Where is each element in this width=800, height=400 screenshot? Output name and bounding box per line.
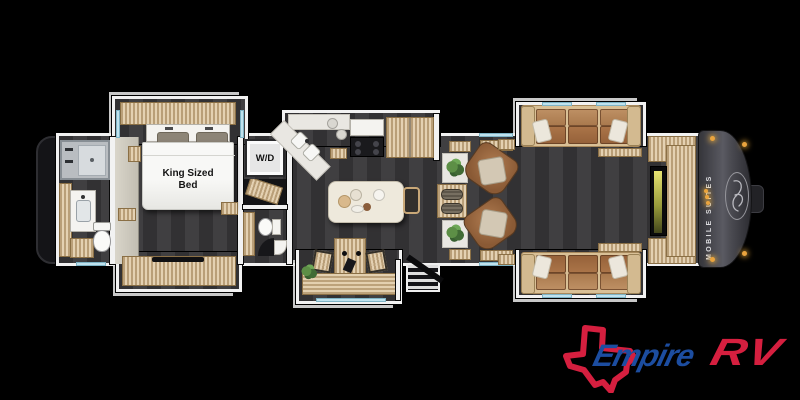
sofa-top-back-cushion: [568, 109, 598, 126]
toilet-icon: [93, 230, 111, 252]
bath-window: [76, 262, 106, 266]
bath-sink: [76, 200, 91, 222]
bed-fold-line: [143, 155, 235, 156]
half-bath-toilet-tank: [272, 219, 281, 235]
shower-faucet-icon: [65, 148, 73, 151]
angled-counter: [245, 179, 283, 205]
marker-light-icon: [710, 257, 715, 262]
sofa-bottom-window: [596, 294, 626, 298]
island-stool: [403, 187, 420, 214]
wall-half-bath-top: [243, 205, 287, 209]
microwave-oven: [350, 119, 384, 136]
sofa-top-seat-cushion: [568, 126, 598, 144]
bedroom-wardrobe: [120, 102, 236, 125]
kitchen-faucet-icon: [305, 139, 309, 143]
washer-dryer-label: W/D: [256, 153, 274, 164]
counter-lid-icon: [327, 118, 338, 129]
kitchen-counter-top: [288, 114, 350, 130]
side-shelf-bottom: [498, 254, 515, 265]
entertainment-wall-cabinet: [666, 145, 696, 257]
plate-icon: [338, 195, 351, 208]
script-monogram-icon: [725, 172, 749, 220]
entry-wall-left: [396, 260, 400, 300]
marker-light-icon: [704, 189, 708, 193]
sofa-bottom-seat-cushion: [568, 255, 598, 273]
shower-drain-icon: [90, 158, 94, 162]
stove-cooktop: [350, 137, 384, 157]
floorplan-image: King Sized Bed W/D: [0, 0, 800, 400]
washer-dryer-closet: W/D: [245, 139, 285, 177]
shower-faucet-icon: [65, 160, 73, 163]
table-knob-icon: [342, 251, 347, 256]
marker-light-icon: [742, 251, 747, 256]
cup-icon: [363, 203, 371, 211]
sofa-bottom-window: [542, 294, 572, 298]
marker-light-icon: [705, 195, 709, 199]
sofa-bottom-back-cushion: [568, 273, 598, 290]
shelf-handle-icon: [205, 127, 213, 130]
utensil-box: [330, 148, 347, 159]
dinette-plant: [301, 264, 318, 281]
dinette-table: [334, 238, 366, 274]
plate-icon: [350, 189, 362, 201]
burner-icon: [355, 141, 361, 147]
bedroom-slide-window-left: [116, 110, 120, 138]
storage-basket: [441, 203, 463, 214]
bedroom-tv-icon: [152, 257, 204, 262]
logo-text-rv: RV: [706, 332, 787, 375]
half-bath-shelves: [243, 212, 255, 256]
lounge-window-top: [479, 133, 513, 137]
plant-bottom: [446, 224, 465, 244]
tv-icon: [650, 166, 667, 236]
marker-light-icon: [706, 201, 710, 205]
plant-top: [446, 158, 465, 179]
recliner-pillow: [477, 156, 507, 186]
half-bath-toilet-icon: [258, 218, 273, 236]
dinette-chair-right: [365, 250, 387, 274]
burner-icon: [373, 141, 379, 147]
table-knob-icon: [356, 251, 361, 256]
logo-text-empire: Empire: [590, 338, 698, 374]
wall-fridge-right: [434, 114, 439, 160]
bedroom-slide-window-right: [240, 110, 244, 138]
dealer-logo: Empire RV: [556, 320, 796, 396]
sofa-top-armrest: [627, 106, 641, 146]
bath-faucet-icon: [81, 195, 85, 199]
utility-angled-cabinet: [244, 179, 286, 205]
sofa-top-side-shelf: [598, 148, 642, 157]
table-item: [343, 258, 357, 274]
marker-light-icon: [742, 142, 747, 147]
king-bed-label: King Sized Bed: [159, 168, 217, 192]
bed-bench-left: [118, 208, 136, 221]
sofa-top-window: [596, 102, 626, 106]
sofa-bottom-armrest: [627, 254, 641, 294]
burner-icon: [373, 149, 379, 155]
front-cap-brand: MOBILE SUITES: [706, 140, 713, 260]
basket-console: [437, 184, 467, 218]
dinette-window: [316, 298, 386, 302]
sofa-bottom-side-shelf: [598, 243, 642, 252]
recliner-pillow: [478, 209, 508, 239]
sofa-top-window: [542, 102, 572, 106]
console-bottom-left: [449, 249, 471, 260]
shelf-handle-icon: [165, 127, 173, 130]
counter-lid-icon: [336, 129, 347, 140]
shower: [60, 140, 110, 180]
console-top-left: [449, 141, 471, 152]
fridge-door-split: [409, 118, 411, 157]
marker-light-icon: [710, 136, 715, 141]
side-shelf-top: [498, 139, 515, 150]
bedroom-nightstand: [128, 146, 141, 162]
bed-bench-right: [221, 202, 238, 215]
tray-icon: [351, 205, 364, 213]
tv-screen-glow: [654, 171, 662, 233]
bowl-icon: [373, 189, 385, 201]
bath-corner-cabinet: [70, 238, 94, 258]
storage-basket: [441, 189, 463, 200]
refrigerator: [386, 117, 434, 158]
kitchen-island: [328, 181, 404, 223]
burner-icon: [355, 149, 361, 155]
